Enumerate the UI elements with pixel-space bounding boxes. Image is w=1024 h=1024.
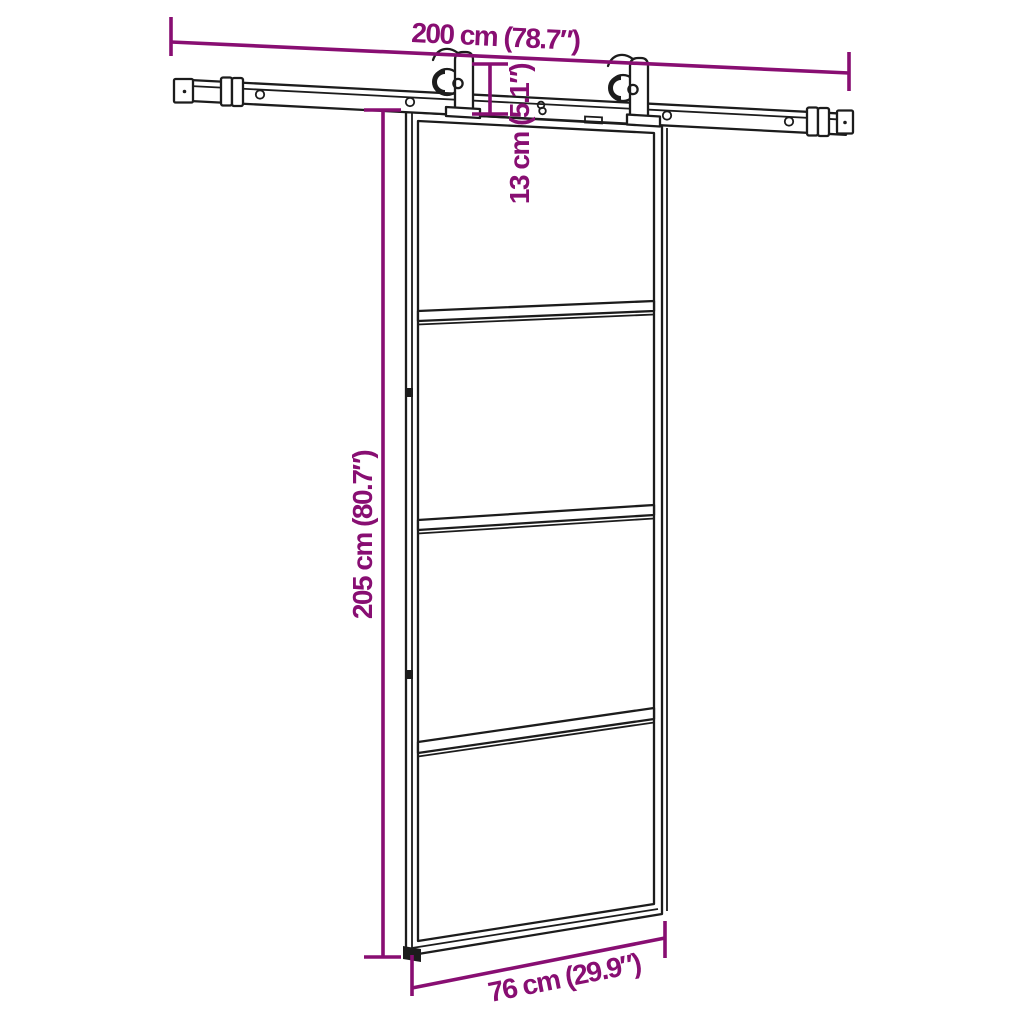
product-dimension-diagram: 200 cm (78.7″) 13 cm (5.1″) 205 cm (80.7… xyxy=(0,0,1024,1024)
dimension-track-width-label: 200 cm (78.7″) xyxy=(411,17,581,56)
track-end-cap-right xyxy=(837,111,853,134)
dimension-door-height: 205 cm (80.7″) xyxy=(347,110,401,957)
track-end-stop-right xyxy=(807,108,829,137)
door-outer-frame xyxy=(406,112,662,956)
hanger-strap-right xyxy=(630,58,648,122)
hanger-plate-right xyxy=(627,115,660,127)
door-edge-pin-top xyxy=(405,388,413,397)
door-edge-pin-bottom xyxy=(405,670,413,679)
dimension-drop-height-label: 13 cm (5.1″) xyxy=(504,64,535,204)
dimension-door-height-label: 205 cm (80.7″) xyxy=(347,451,378,619)
track-end-stop-left xyxy=(221,78,243,107)
track-end-cap-left xyxy=(174,79,193,103)
barn-door xyxy=(403,112,667,962)
hanger-strap-left xyxy=(455,52,473,116)
diagram-canvas: 200 cm (78.7″) 13 cm (5.1″) 205 cm (80.7… xyxy=(0,0,1024,1024)
roller-wheel-rim-left xyxy=(435,72,445,93)
roller-wheel-rim-right xyxy=(611,78,622,99)
